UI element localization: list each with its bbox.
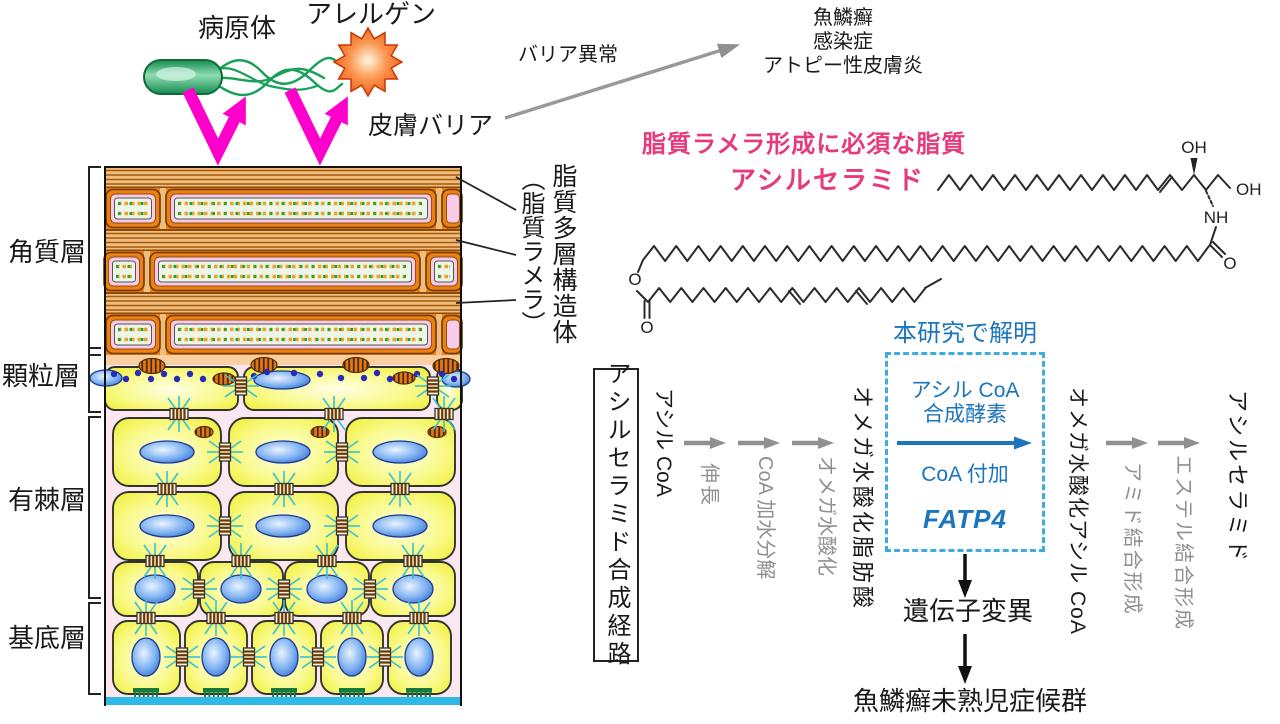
layer-label-spinous: 有棘層 <box>8 486 86 516</box>
disease-list: 魚鱗癬 感染症 アトピー性皮膚炎 <box>743 6 943 78</box>
allergen-label: アレルゲン <box>306 0 436 30</box>
step-coa-hydrolysis: CoA 加水分解 <box>755 456 775 579</box>
pathogen-label: 病原体 <box>198 14 276 44</box>
enzyme-reaction-label: CoA 付加 <box>888 463 1042 486</box>
basal-bracket <box>89 603 101 694</box>
enzyme-name-line1: アシル CoA <box>888 379 1042 402</box>
node-omega-hydroxy-fa: オメガ水酸化脂肪酸 <box>851 386 873 611</box>
pathway-title: アシルセラミド合成経路 <box>604 361 628 669</box>
lamella-leader-lines <box>456 177 516 303</box>
spinous-bracket <box>89 417 101 598</box>
layer-label-basal: 基底層 <box>8 624 86 654</box>
enzyme-gene-label: FATP4 <box>888 505 1042 534</box>
lamella-structure-label: 脂質多層構造体 <box>550 163 575 345</box>
pathway-title-box: アシルセラミド合成経路 <box>593 368 639 662</box>
lamella-paren-label: （脂質ラメラ） <box>518 167 542 335</box>
disease-ichthyosis: 魚鱗癬 <box>743 6 943 30</box>
node-omega-hydroxy-acyl-coa: オメガ水酸化アシル CoA <box>1067 387 1088 635</box>
mutation-label: 遺伝子変異 <box>893 597 1043 627</box>
disease-infection: 感染症 <box>743 30 943 54</box>
figure-canvas: OH OH NH O O O <box>0 0 1280 724</box>
lipid-name: アシルセラミド <box>730 166 925 196</box>
layer-label-granular: 顆粒層 <box>2 362 80 392</box>
step-amide-bond: アミド結合形成 <box>1122 462 1142 616</box>
step-omega-hydroxylation: オメガ水酸化 <box>816 456 836 576</box>
enzyme-name-line2: 合成酵素 <box>888 403 1042 426</box>
barrier-abnormality-label: バリア異常 <box>518 44 618 67</box>
syndrome-label: 魚鱗癬未熟児症候群 <box>852 687 1088 717</box>
lipid-heading: 脂質ラメラ形成に必須な脂質 <box>642 131 966 159</box>
enzyme-box: アシル CoA 合成酵素 CoA 付加 FATP4 <box>885 352 1045 552</box>
disease-atopic-dermatitis: アトピー性皮膚炎 <box>743 54 943 78</box>
node-acyl-coa: アシル CoA <box>653 388 674 497</box>
layer-label-corneum: 角質層 <box>8 238 86 268</box>
layer-brackets <box>89 167 101 694</box>
step-elongation: 伸長 <box>699 463 719 507</box>
corneum-bracket <box>89 167 101 355</box>
step-ester-bond: エステル結合形成 <box>1173 455 1193 631</box>
skin-barrier-label: 皮膚バリア <box>368 112 493 141</box>
node-acylceramide: アシルセラミド <box>1226 390 1248 564</box>
discovery-label: 本研究で解明 <box>885 320 1045 348</box>
granular-bracket <box>89 348 101 412</box>
